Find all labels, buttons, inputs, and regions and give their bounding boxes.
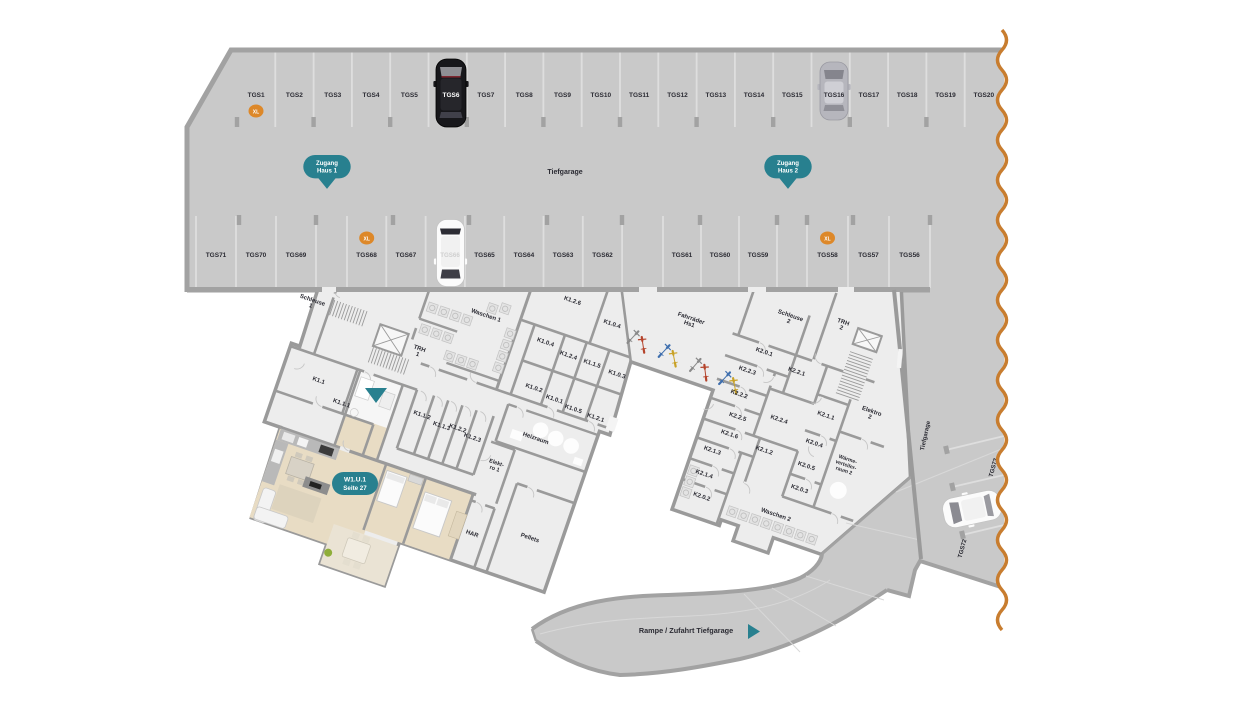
svg-text:XL: XL xyxy=(824,236,830,242)
svg-text:TGS14: TGS14 xyxy=(744,92,765,99)
svg-text:TGS20: TGS20 xyxy=(974,92,995,99)
svg-text:TGS66: TGS66 xyxy=(440,252,460,259)
svg-text:XL: XL xyxy=(253,109,259,115)
svg-text:TGS59: TGS59 xyxy=(748,252,769,259)
svg-text:TGS10: TGS10 xyxy=(591,92,612,99)
svg-text:TGS13: TGS13 xyxy=(706,92,727,99)
svg-text:Rampe / Zufahrt Tiefgarage: Rampe / Zufahrt Tiefgarage xyxy=(639,626,733,635)
svg-text:TGS67: TGS67 xyxy=(396,252,417,259)
svg-text:Haus 1: Haus 1 xyxy=(317,168,338,175)
svg-text:TGS9: TGS9 xyxy=(554,92,571,99)
svg-text:Tiefgarage: Tiefgarage xyxy=(547,169,582,176)
svg-text:XL: XL xyxy=(364,236,370,242)
svg-text:TGS61: TGS61 xyxy=(672,252,693,259)
svg-text:TGS7: TGS7 xyxy=(477,92,494,99)
svg-text:TGS68: TGS68 xyxy=(356,252,377,259)
svg-text:TGS5: TGS5 xyxy=(401,92,418,99)
svg-text:TGS15: TGS15 xyxy=(782,92,803,99)
svg-text:TGS12: TGS12 xyxy=(667,92,688,99)
svg-text:TGS2: TGS2 xyxy=(286,92,303,99)
svg-text:TGS62: TGS62 xyxy=(592,252,613,259)
svg-text:Zugang: Zugang xyxy=(316,160,338,167)
svg-text:TGS69: TGS69 xyxy=(286,252,307,259)
svg-text:TGS6: TGS6 xyxy=(443,92,460,99)
svg-text:Seite 27: Seite 27 xyxy=(343,485,367,492)
svg-text:TGS63: TGS63 xyxy=(553,252,574,259)
svg-text:TGS70: TGS70 xyxy=(246,252,267,259)
svg-text:TGS17: TGS17 xyxy=(859,92,880,99)
svg-text:TGS8: TGS8 xyxy=(516,92,533,99)
svg-text:TGS64: TGS64 xyxy=(514,252,535,259)
svg-text:W1.U.1: W1.U.1 xyxy=(344,477,366,484)
svg-text:TGS65: TGS65 xyxy=(474,252,495,259)
svg-text:TGS1: TGS1 xyxy=(248,92,265,99)
svg-text:TGS11: TGS11 xyxy=(629,92,650,99)
svg-text:TGS57: TGS57 xyxy=(858,252,879,259)
svg-text:TGS4: TGS4 xyxy=(363,92,380,99)
svg-text:Haus 2: Haus 2 xyxy=(778,168,799,175)
svg-text:TGS56: TGS56 xyxy=(899,252,920,259)
svg-text:TGS18: TGS18 xyxy=(897,92,918,99)
svg-text:TGS16: TGS16 xyxy=(824,92,845,99)
svg-text:TGS71: TGS71 xyxy=(206,252,227,259)
svg-text:TGS60: TGS60 xyxy=(710,252,731,259)
svg-text:TGS58: TGS58 xyxy=(817,252,838,259)
svg-text:TGS3: TGS3 xyxy=(324,92,341,99)
svg-text:TGS19: TGS19 xyxy=(935,92,956,99)
svg-text:Zugang: Zugang xyxy=(777,160,799,167)
